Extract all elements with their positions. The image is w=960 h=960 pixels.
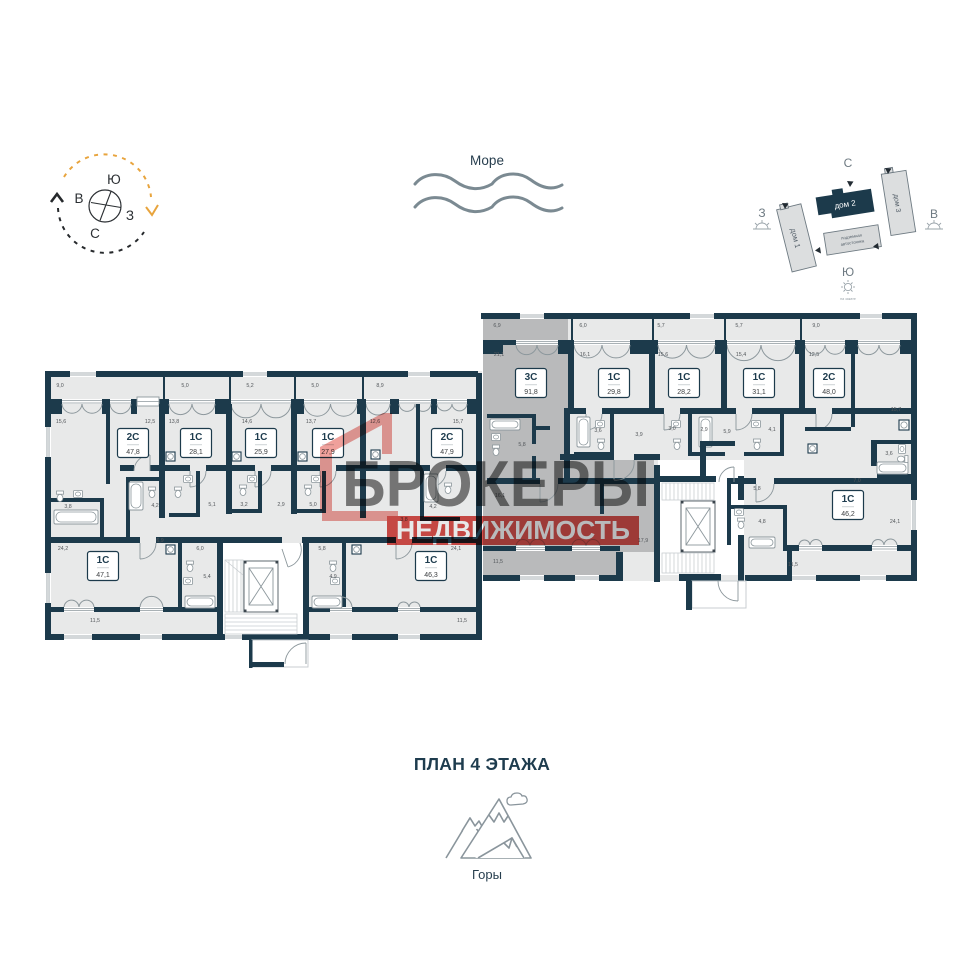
svg-text:11,5: 11,5 [493, 559, 503, 565]
svg-text:3,8: 3,8 [64, 504, 71, 510]
svg-text:З: З [758, 206, 765, 220]
svg-text:28,2: 28,2 [677, 389, 691, 396]
svg-text:15,4: 15,4 [736, 352, 746, 358]
svg-text:11,5: 11,5 [90, 618, 100, 624]
svg-text:Море: Море [470, 153, 504, 168]
svg-text:17,9: 17,9 [638, 538, 648, 544]
svg-text:6,0: 6,0 [196, 546, 203, 552]
svg-text:4,2: 4,2 [151, 503, 158, 509]
svg-text:15,6: 15,6 [658, 352, 668, 358]
svg-text:5,0: 5,0 [181, 383, 188, 389]
svg-text:15,6: 15,6 [56, 419, 66, 425]
svg-text:2,9: 2,9 [277, 502, 284, 508]
svg-text:2С: 2С [127, 432, 140, 443]
svg-text:24,2: 24,2 [58, 546, 68, 552]
svg-text:5,8: 5,8 [753, 486, 760, 492]
svg-text:5,2: 5,2 [246, 383, 253, 389]
svg-text:9,0: 9,0 [812, 323, 819, 329]
svg-text:3,0: 3,0 [668, 426, 675, 432]
svg-text:1С: 1С [608, 372, 621, 383]
svg-text:24,1: 24,1 [451, 546, 461, 552]
svg-text:91,8: 91,8 [524, 389, 538, 396]
svg-text:З: З [126, 208, 134, 223]
svg-text:15,7: 15,7 [891, 407, 901, 413]
svg-text:3,6: 3,6 [594, 428, 601, 434]
svg-text:5,7: 5,7 [657, 323, 664, 329]
svg-text:6,0: 6,0 [579, 323, 586, 329]
svg-text:НЕДВИЖИМОСТЬ: НЕДВИЖИМОСТЬ [396, 515, 630, 545]
svg-text:В: В [74, 191, 83, 206]
svg-text:13,8: 13,8 [169, 419, 179, 425]
svg-text:8,9: 8,9 [376, 383, 383, 389]
svg-text:В: В [930, 207, 938, 221]
svg-text:3,6: 3,6 [885, 451, 892, 457]
svg-text:31,1: 31,1 [752, 389, 766, 396]
svg-text:4,9: 4,9 [329, 574, 336, 580]
svg-text:21,1: 21,1 [494, 352, 504, 358]
svg-text:2С: 2С [441, 432, 454, 443]
svg-text:3,9: 3,9 [635, 432, 642, 438]
svg-text:12,5: 12,5 [145, 419, 155, 425]
svg-text:46,2: 46,2 [841, 511, 855, 518]
svg-text:16,1: 16,1 [580, 352, 590, 358]
svg-text:2С: 2С [823, 372, 836, 383]
svg-text:47,1: 47,1 [96, 572, 110, 579]
svg-text:48,0: 48,0 [822, 389, 836, 396]
svg-text:1С: 1С [97, 555, 110, 566]
svg-text:1С: 1С [678, 372, 691, 383]
svg-text:6,9: 6,9 [156, 538, 163, 544]
svg-text:4,1: 4,1 [768, 427, 775, 433]
svg-text:Ю: Ю [842, 265, 854, 279]
svg-text:12,5: 12,5 [809, 352, 819, 358]
svg-text:15,7: 15,7 [453, 419, 463, 425]
svg-text:24,1: 24,1 [890, 519, 900, 525]
svg-text:3,2: 3,2 [240, 502, 247, 508]
svg-text:1С: 1С [753, 372, 766, 383]
svg-text:9,0: 9,0 [56, 383, 63, 389]
svg-text:5,8: 5,8 [318, 546, 325, 552]
svg-text:5,7: 5,7 [735, 323, 742, 329]
svg-text:4,8: 4,8 [758, 519, 765, 525]
svg-text:1С: 1С [255, 432, 268, 443]
svg-text:1С: 1С [842, 494, 855, 505]
svg-text:25,9: 25,9 [254, 449, 268, 456]
svg-text:5,0: 5,0 [311, 383, 318, 389]
svg-text:С: С [844, 156, 853, 170]
svg-text:5,1: 5,1 [208, 502, 215, 508]
svg-text:1С: 1С [425, 555, 438, 566]
svg-text:29,8: 29,8 [607, 389, 621, 396]
svg-text:47,8: 47,8 [126, 449, 140, 456]
svg-text:Горы: Горы [472, 867, 502, 882]
svg-text:13,7: 13,7 [306, 419, 316, 425]
svg-text:1С: 1С [190, 432, 203, 443]
svg-text:БРОКЕРЫ: БРОКЕРЫ [342, 447, 650, 520]
svg-text:Ю: Ю [107, 172, 121, 187]
svg-text:на закате: на закате [840, 297, 856, 301]
svg-text:11,5: 11,5 [457, 618, 467, 624]
svg-text:7,0: 7,0 [853, 478, 860, 484]
svg-text:46,3: 46,3 [424, 572, 438, 579]
svg-text:5,0: 5,0 [309, 502, 316, 508]
svg-text:11,5: 11,5 [788, 562, 798, 568]
svg-text:5,9: 5,9 [723, 429, 730, 435]
svg-text:28,1: 28,1 [189, 449, 203, 456]
svg-text:3С: 3С [525, 372, 538, 383]
svg-text:ПЛАН 4 ЭТАЖА: ПЛАН 4 ЭТАЖА [414, 754, 550, 774]
svg-text:14,6: 14,6 [242, 419, 252, 425]
svg-text:2,9: 2,9 [700, 427, 707, 433]
svg-text:С: С [90, 226, 100, 241]
svg-text:6,9: 6,9 [493, 323, 500, 329]
svg-text:5,4: 5,4 [203, 574, 210, 580]
